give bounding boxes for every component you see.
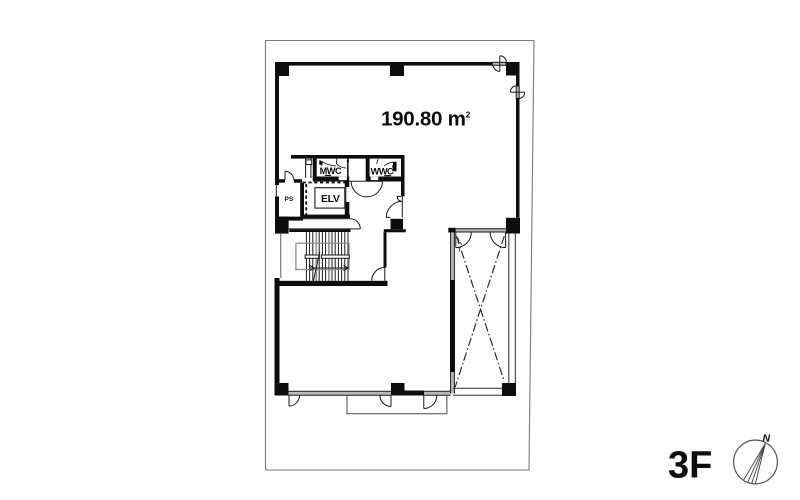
svg-text:ELV: ELV <box>321 194 340 205</box>
svg-text:PS: PS <box>285 196 294 203</box>
svg-text:MWC: MWC <box>320 166 342 176</box>
svg-text:N: N <box>763 433 771 445</box>
svg-text:WWC: WWC <box>371 166 394 176</box>
svg-text:190.80 m2: 190.80 m2 <box>381 108 471 131</box>
svg-text:3F: 3F <box>668 445 712 487</box>
